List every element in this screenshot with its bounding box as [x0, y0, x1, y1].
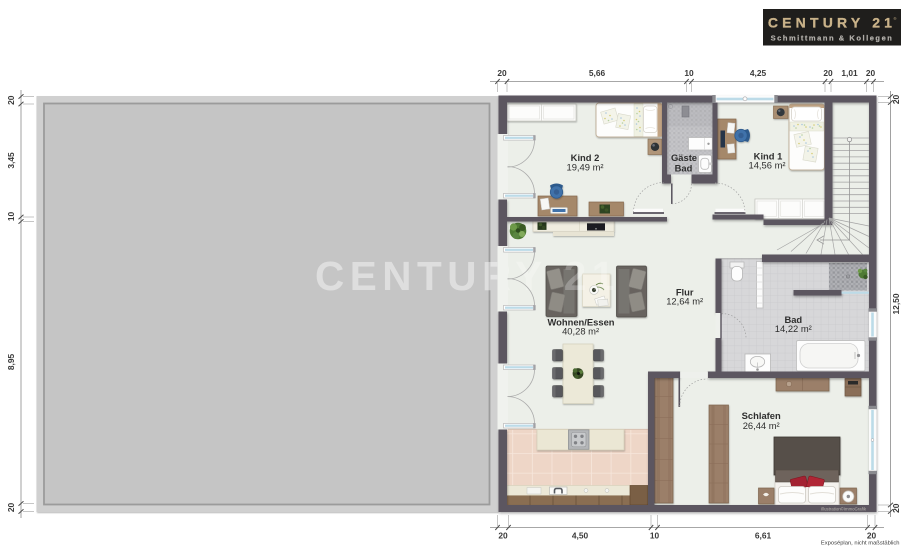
svg-text:1,01: 1,01	[841, 68, 858, 78]
svg-text:10: 10	[684, 68, 694, 78]
svg-text:3,45: 3,45	[6, 152, 16, 169]
svg-text:20: 20	[891, 503, 901, 513]
svg-text:20: 20	[497, 68, 507, 78]
svg-text:19,49 m²: 19,49 m²	[567, 161, 604, 172]
svg-text:Bad: Bad	[675, 163, 693, 174]
svg-text:Illustration©ImmoGrafik: Illustration©ImmoGrafik	[821, 507, 867, 512]
svg-text:40,28 m²: 40,28 m²	[562, 326, 599, 337]
svg-text:10: 10	[650, 531, 660, 541]
svg-text:10: 10	[6, 212, 16, 222]
svg-text:CENTURY 21: CENTURY 21	[768, 15, 896, 31]
svg-text:Exposéplan, nicht maßstäblich: Exposéplan, nicht maßstäblich	[821, 541, 900, 547]
svg-text:20: 20	[6, 95, 16, 105]
svg-text:20: 20	[866, 68, 876, 78]
svg-text:26,44 m²: 26,44 m²	[743, 420, 780, 431]
svg-text:20: 20	[6, 503, 16, 513]
svg-text:®: ®	[894, 16, 897, 21]
svg-text:4,25: 4,25	[750, 68, 767, 78]
svg-text:14,56 m²: 14,56 m²	[749, 159, 786, 170]
svg-text:Gäste: Gäste	[671, 152, 697, 163]
svg-text:6,61: 6,61	[755, 531, 772, 541]
svg-text:4,50: 4,50	[572, 531, 589, 541]
svg-text:12,64 m²: 12,64 m²	[666, 296, 703, 307]
svg-text:20: 20	[867, 531, 877, 541]
svg-text:20: 20	[498, 531, 508, 541]
svg-text:5,66: 5,66	[589, 68, 606, 78]
svg-text:8,95: 8,95	[6, 354, 16, 371]
svg-text:20: 20	[891, 95, 901, 105]
svg-text:20: 20	[823, 68, 833, 78]
svg-text:Schmittmann & Kollegen: Schmittmann & Kollegen	[771, 34, 894, 43]
svg-text:14,22 m²: 14,22 m²	[775, 323, 812, 334]
svg-text:12,50: 12,50	[891, 293, 901, 314]
